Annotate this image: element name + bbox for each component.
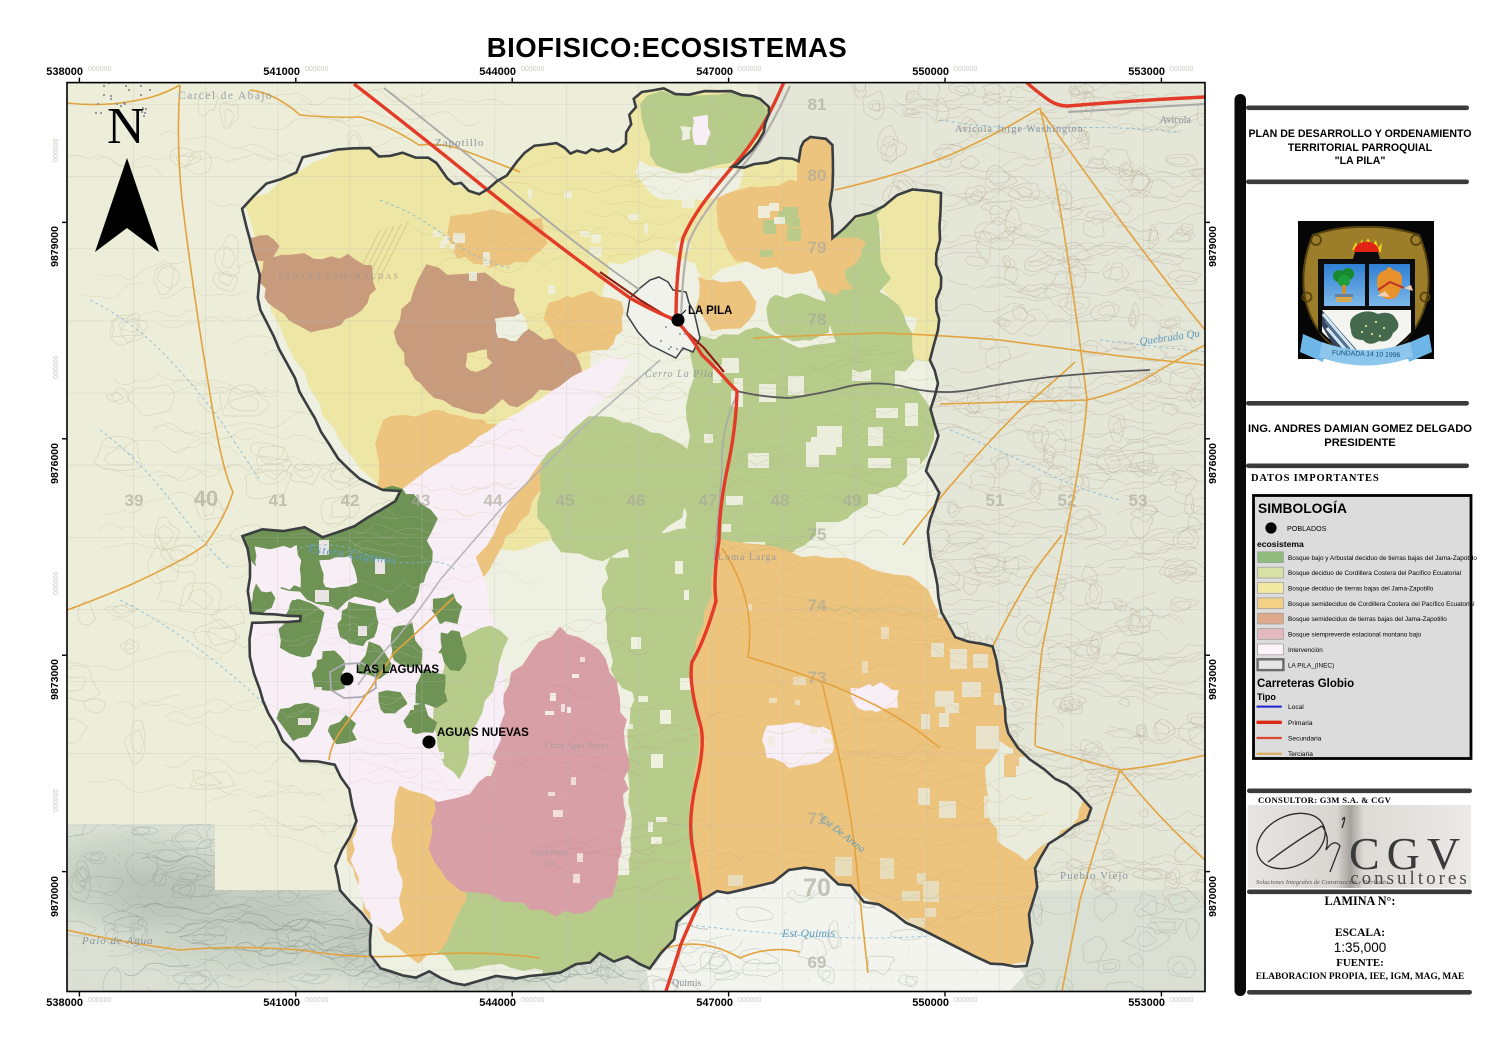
svg-text:AGUAS NUEVAS: AGUAS NUEVAS [437,727,529,739]
svg-text:9879000: 9879000 [1207,226,1219,267]
svg-text:000000: 000000 [88,997,111,1004]
svg-text:Bosque semideciduo de tierras: Bosque semideciduo de tierras bajas del … [1288,616,1447,623]
svg-text:Carreteras Globio: Carreteras Globio [1257,678,1354,690]
svg-text:80: 80 [808,166,827,185]
svg-text:Bosque semideciduo de Cordille: Bosque semideciduo de Cordillera Costera… [1288,601,1475,608]
svg-text:ESCALA:: ESCALA: [1335,927,1385,939]
svg-text:000000: 000000 [305,66,328,73]
svg-text:Tipo: Tipo [1257,692,1276,702]
svg-text:000000: 000000 [305,997,328,1004]
svg-text:Bosque siempreverde estacional: Bosque siempreverde estacional montano b… [1288,632,1422,639]
svg-text:75: 75 [808,525,827,544]
svg-text:550000: 550000 [912,66,949,78]
svg-text:000000: 000000 [521,997,544,1004]
svg-text:Intervención: Intervención [1288,647,1323,654]
svg-text:000000: 000000 [53,789,60,812]
svg-text:LAS LAGUNAS: LAS LAGUNAS [356,664,439,676]
svg-text:881: 881 [545,859,557,868]
svg-text:000000: 000000 [521,66,544,73]
svg-text:000000: 000000 [954,997,977,1004]
svg-text:70: 70 [803,874,831,902]
svg-text:Primaria: Primaria [1288,720,1313,727]
svg-text:SIMBOLOGÍA: SIMBOLOGÍA [1258,500,1347,516]
svg-text:Local: Local [1288,704,1304,711]
svg-text:547000: 547000 [696,997,733,1009]
svg-text:Bosque deciduo de tierras baja: Bosque deciduo de tierras bajas del Jama… [1288,586,1434,593]
svg-text:45: 45 [556,491,575,510]
svg-text:Loma Larga: Loma Larga [718,552,777,563]
svg-text:ING. ANDRES DAMIAN GOMEZ DELGA: ING. ANDRES DAMIAN GOMEZ DELGADO [1248,423,1472,435]
svg-text:9873000: 9873000 [49,659,61,700]
svg-text:550000: 550000 [912,997,949,1009]
svg-text:47: 47 [699,491,718,510]
svg-text:51: 51 [986,491,1005,510]
svg-text:000000: 000000 [53,139,60,162]
svg-text:POBLADOS: POBLADOS [1287,524,1327,533]
svg-text:39: 39 [125,491,144,510]
svg-text:74: 74 [808,596,827,615]
svg-text:538000: 538000 [46,66,83,78]
svg-text:53: 53 [1129,491,1148,510]
svg-text:46: 46 [627,491,646,510]
svg-text:81: 81 [808,95,827,114]
svg-text:Secundaria: Secundaria [1288,736,1322,743]
svg-text:000000: 000000 [1170,66,1193,73]
svg-text:42: 42 [341,491,360,510]
svg-text:CONSULTOR: G3M S.A. & CGV: CONSULTOR: G3M S.A. & CGV [1258,795,1392,805]
svg-text:LA PILA: LA PILA [688,305,732,317]
svg-text:9879000: 9879000 [49,226,61,267]
svg-text:DATOS IMPORTANTES: DATOS IMPORTANTES [1251,473,1379,484]
svg-text:9873000: 9873000 [1207,659,1219,700]
svg-text:ecosistema: ecosistema [1257,539,1304,549]
svg-text:000000: 000000 [738,997,761,1004]
svg-text:SABANA ESMERALDAS: SABANA ESMERALDAS [278,272,400,281]
svg-text:000000: 000000 [738,66,761,73]
svg-text:LAMINA N°:: LAMINA N°: [1325,894,1396,908]
svg-text:ELABORACION PROPIA, IEE, IGM,: ELABORACION PROPIA, IEE, IGM, MAG, MAE [1256,972,1465,982]
svg-text:541000: 541000 [263,997,300,1009]
svg-text:Quimis: Quimis [672,978,702,989]
svg-text:N: N [107,98,145,155]
svg-text:544000: 544000 [479,66,516,78]
svg-text:Avicola: Avicola [1160,115,1191,126]
svg-text:Bosque deciduo de Cordillera C: Bosque deciduo de Cordillera Costera del… [1288,570,1461,577]
svg-text:9870000: 9870000 [1207,876,1219,917]
svg-text:9876000: 9876000 [49,443,61,484]
svg-text:9876000: 9876000 [1207,443,1219,484]
svg-text:69: 69 [808,953,827,972]
svg-text:9870000: 9870000 [49,876,61,917]
svg-text:1:35,000: 1:35,000 [1334,940,1387,955]
svg-text:000000: 000000 [954,66,977,73]
svg-text:"LA PILA": "LA PILA" [1335,155,1386,167]
svg-text:000000: 000000 [1170,997,1193,1004]
svg-text:Terciaria: Terciaria [1288,751,1313,758]
svg-text:Cerro La Pila: Cerro La Pila [645,369,714,380]
svg-text:40: 40 [194,486,218,511]
svg-text:000000: 000000 [88,66,111,73]
svg-text:TERRITORIAL PARROQUIAL: TERRITORIAL PARROQUIAL [1288,142,1433,154]
svg-text:Bosque bajo y Arbustal deciduo: Bosque bajo y Arbustal deciduo de tierra… [1288,555,1477,562]
svg-text:538000: 538000 [46,997,83,1009]
svg-text:PLAN DE DESARROLLO Y ORDENAMIE: PLAN DE DESARROLLO Y ORDENAMIENTO [1248,128,1471,140]
svg-text:49: 49 [843,491,862,510]
svg-text:BIOFISICO:ECOSISTEMAS: BIOFISICO:ECOSISTEMAS [487,32,847,63]
svg-text:78: 78 [808,310,827,329]
svg-text:Pueblo Viejo: Pueblo Viejo [1060,870,1129,882]
svg-text:553000: 553000 [1128,997,1165,1009]
svg-text:79: 79 [808,238,827,257]
svg-text:48: 48 [771,491,790,510]
svg-text:43: 43 [412,491,431,510]
svg-text:Cerro Agua Nueva: Cerro Agua Nueva [545,740,609,750]
svg-text:PRESIDENTE: PRESIDENTE [1324,437,1396,449]
svg-text:547000: 547000 [696,66,733,78]
svg-text:44: 44 [484,491,503,510]
svg-text:Soluciones Integrales de Const: Soluciones Integrales de Construccion y … [1256,879,1389,886]
svg-text:544000: 544000 [479,997,516,1009]
svg-text:541000: 541000 [263,66,300,78]
svg-text:000000: 000000 [53,356,60,379]
svg-text:553000: 553000 [1128,66,1165,78]
svg-text:FUENTE:: FUENTE: [1336,957,1383,969]
svg-text:Avicola Jorge Washington: Avicola Jorge Washington [955,124,1084,135]
svg-text:41: 41 [269,491,288,510]
svg-text:Zapotillo: Zapotillo [435,137,484,149]
svg-text:LA PILA_(INEC): LA PILA_(INEC) [1288,662,1334,669]
svg-text:000000: 000000 [53,572,60,595]
svg-text:Est Quimis: Est Quimis [781,926,835,940]
svg-text:Carcel de Abajo: Carcel de Abajo [178,90,273,102]
svg-text:Agua Nvas: Agua Nvas [530,847,568,857]
svg-text:Palo de Agua: Palo de Agua [81,935,154,947]
